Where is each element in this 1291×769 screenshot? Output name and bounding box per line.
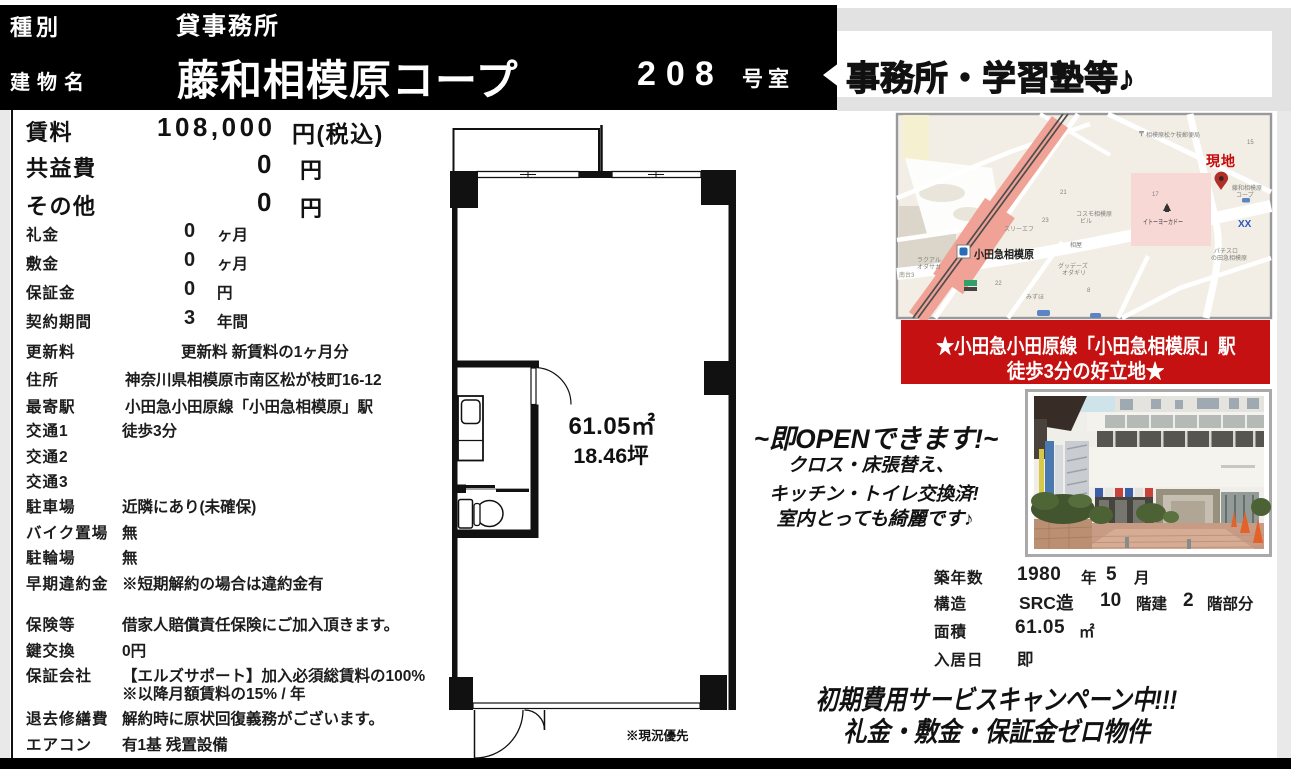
svg-text:21: 21	[1060, 190, 1067, 196]
svg-text:15: 15	[1247, 140, 1254, 146]
svg-text:22: 22	[995, 281, 1002, 287]
svg-text:みずほ: みずほ	[1026, 293, 1044, 301]
svg-text:コープ: コープ	[1236, 192, 1254, 199]
svg-text:※現況優先: ※現況優先	[626, 728, 689, 743]
svg-text:イトーヨーカドー: イトーヨーカドー	[1143, 218, 1183, 226]
svg-text:オダギリ: オダギリ	[1062, 269, 1086, 277]
svg-text:相屋: 相屋	[1070, 241, 1082, 249]
svg-text:藤和相模原: 藤和相模原	[1232, 184, 1262, 192]
svg-text:小田急相模原: 小田急相模原	[973, 247, 1034, 261]
svg-text:グッデーズ: グッデーズ	[1058, 262, 1088, 270]
svg-text:XX: XX	[1238, 219, 1252, 230]
svg-text:南台3: 南台3	[899, 271, 915, 279]
svg-text:17: 17	[1152, 192, 1159, 198]
svg-text:スリーエフ: スリーエフ	[1004, 226, 1034, 233]
svg-text:コスモ相模原: コスモ相模原	[1076, 210, 1112, 218]
svg-text:ラクアル: ラクアル	[917, 257, 941, 264]
svg-text:23: 23	[1042, 218, 1049, 224]
svg-text:〒: 〒	[1138, 131, 1145, 138]
svg-text:パチスロ: パチスロ	[1214, 248, 1238, 255]
svg-text:の田急相模原: の田急相模原	[1211, 254, 1247, 262]
svg-text:相模原松ケ枝郵便局: 相模原松ケ枝郵便局	[1146, 131, 1200, 139]
svg-text:ビル: ビル	[1080, 217, 1092, 225]
svg-text:現地: 現地	[1206, 153, 1236, 169]
svg-text:オダサガ: オダサガ	[917, 263, 941, 271]
